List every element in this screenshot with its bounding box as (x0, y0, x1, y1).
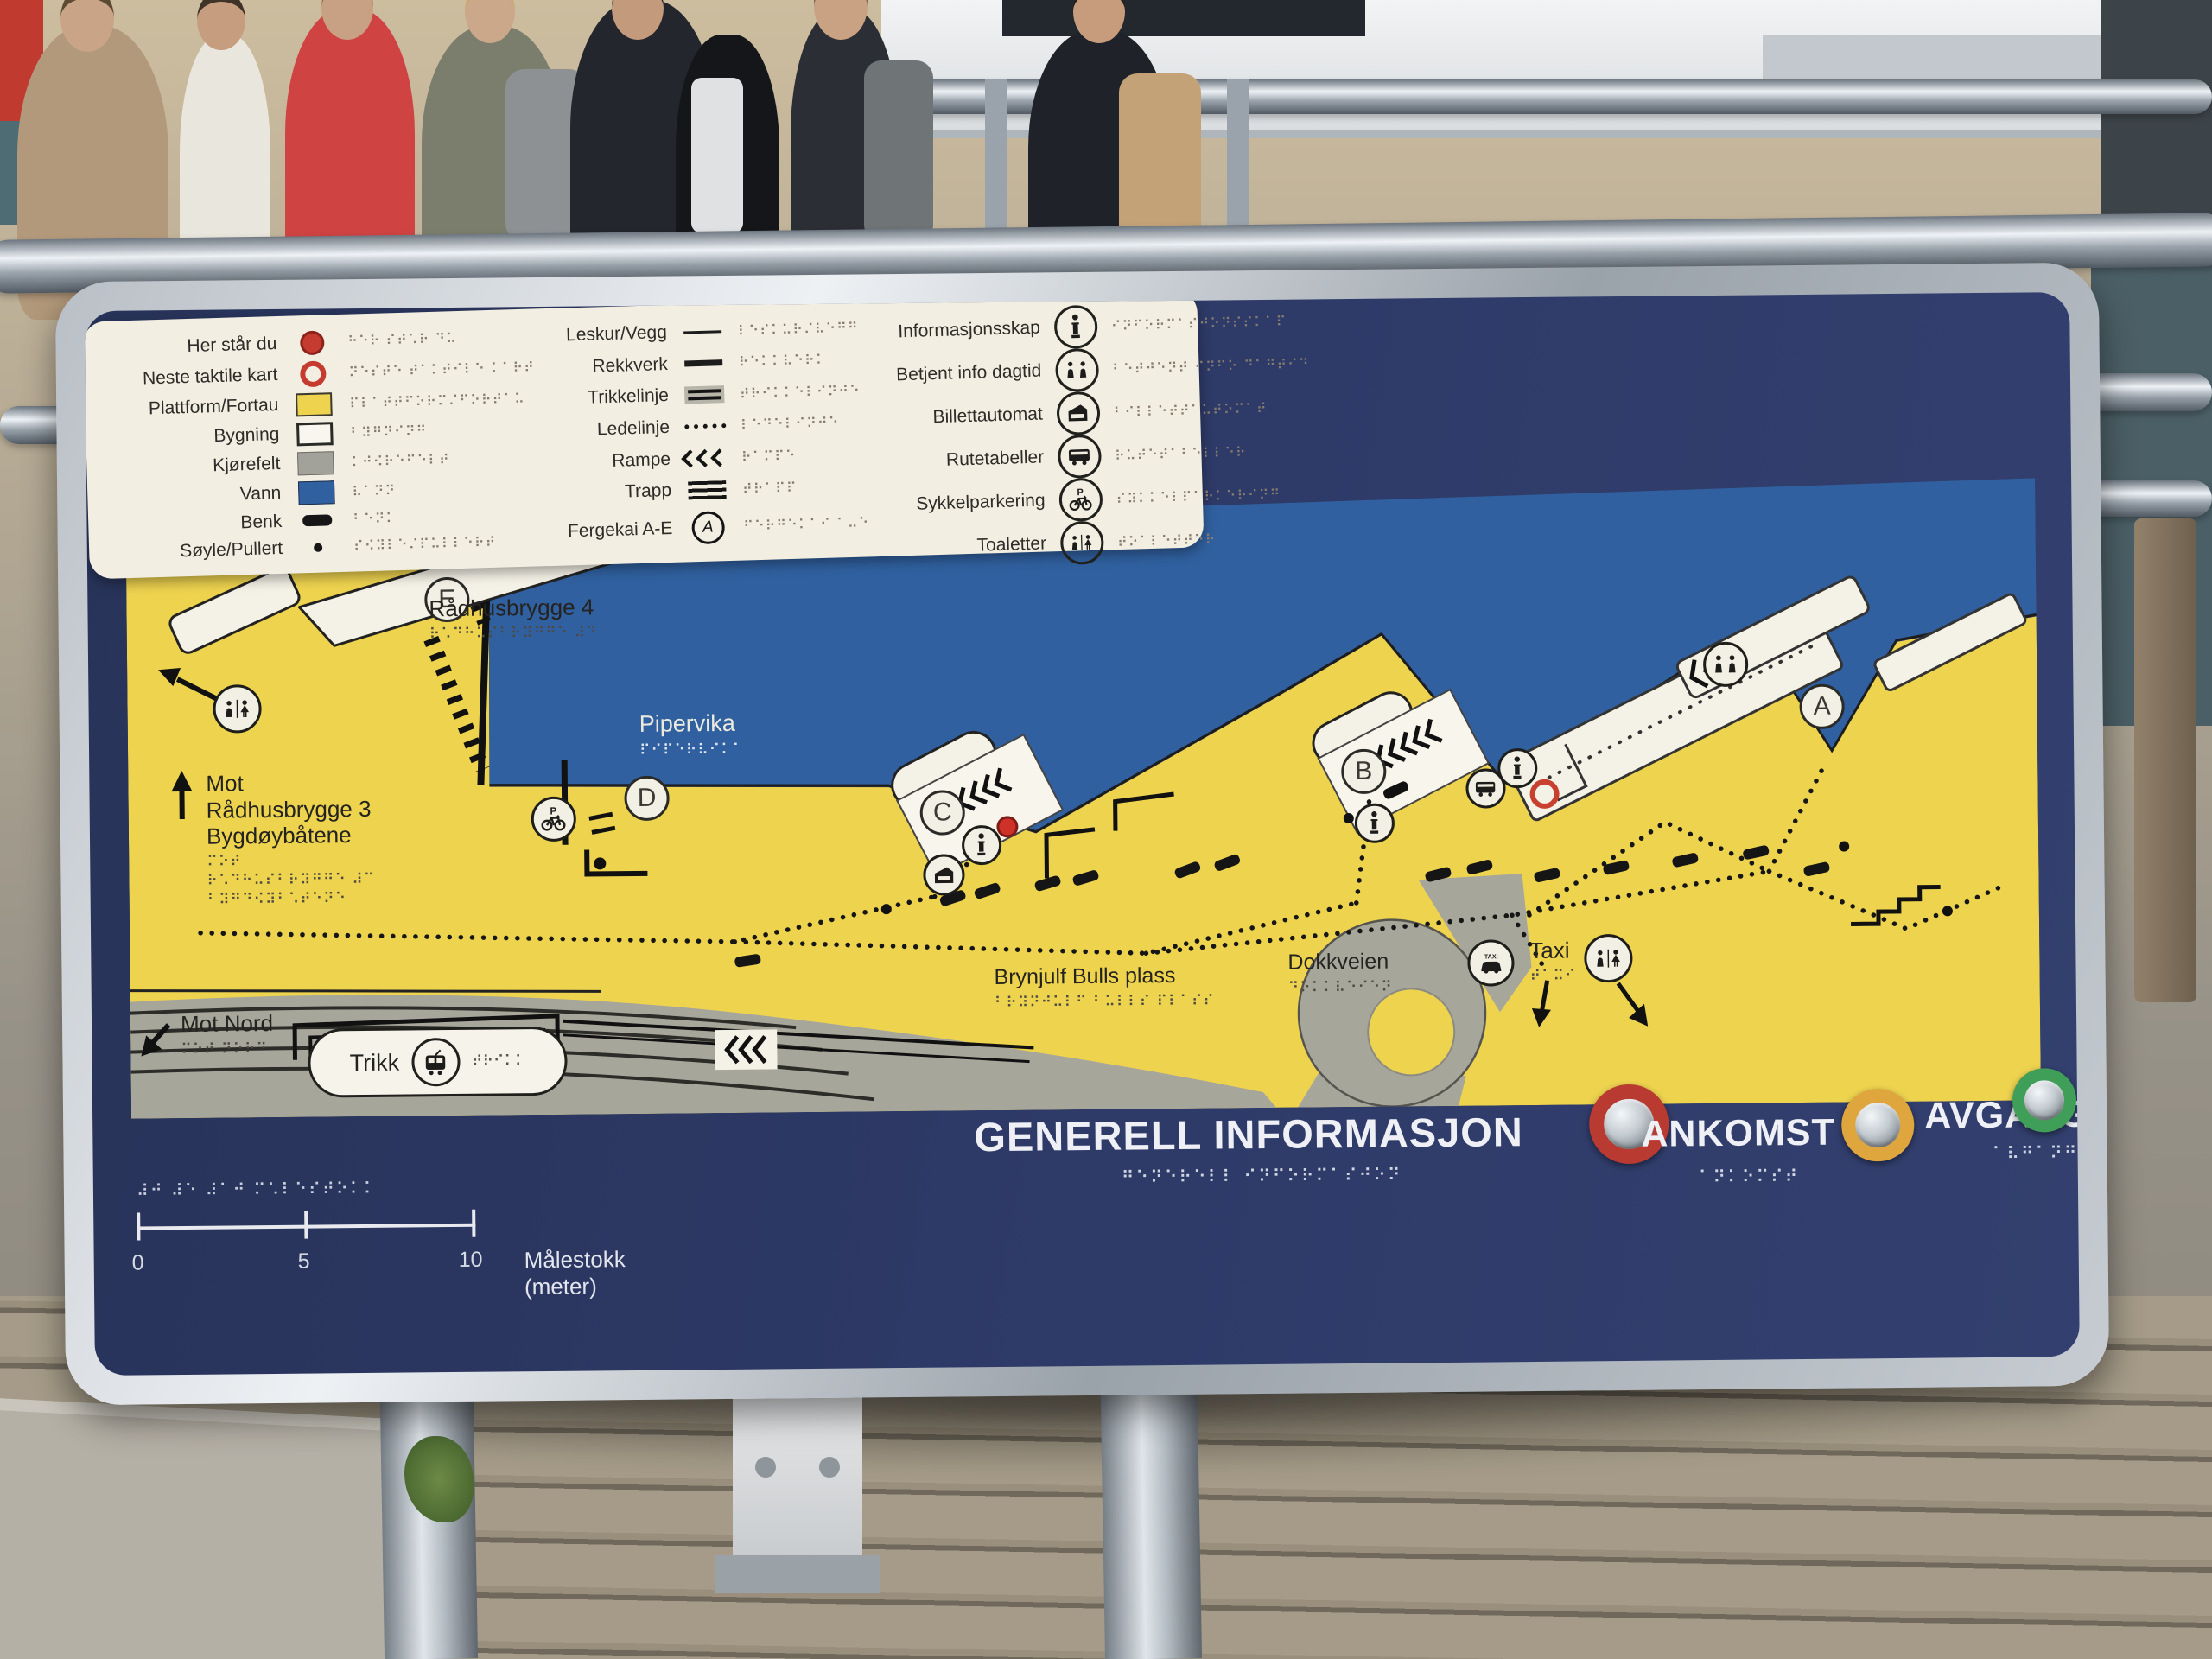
yellow-swatch (289, 391, 340, 416)
legend-braille: ⠎⠪⠽⠇⠑⠌⠏⠥⠇⠇⠑⠗⠞ (353, 534, 497, 555)
tactile-map: A B C D E Rådhusbrygge 4 ⠗⠡⠙⠓ (125, 478, 2041, 1118)
map-scale: ⠼⠚ ⠼⠑ ⠼⠁⠚ ⠍⠡⠇⠑⠎⠞⠕⠅⠅ 0 5 10 Målestokk (me… (137, 1177, 639, 1251)
legend-label: Bygning (108, 424, 280, 450)
bike-parking-icon (531, 797, 576, 842)
legend-label: Her står du (105, 334, 277, 359)
bench-symbol (292, 514, 342, 527)
generell-informasjon-braille: ⠛⠑⠝⠑⠗⠑⠇⠇ ⠊⠝⠋⠕⠗⠍⠁⠎⠚⠕⠝ (1122, 1164, 1402, 1187)
timetable-icon (1053, 435, 1104, 480)
dotted-line-symbol (680, 423, 730, 429)
ankomst-braille: ⠁⠝⠅⠕⠍⠎⠞ (1699, 1166, 1800, 1187)
tram-icon (411, 1038, 461, 1087)
scale-bar (137, 1207, 517, 1247)
legend-braille: ⠝⠑⠎⠞⠑ ⠞⠁⠅⠞⠊⠇⠑ ⠅⠁⠗⠞ (348, 359, 535, 380)
legend-braille: ⠗⠁⠍⠏⠑ (741, 448, 797, 466)
concrete-slab (0, 1397, 422, 1659)
ship-window-band (1002, 0, 1365, 36)
legend-braille: ⠓⠑⠗ ⠎⠞⠡⠗ ⠙⠥ (347, 330, 457, 350)
trikk-braille: ⠞⠗⠊⠅⠅ (472, 1052, 525, 1071)
legend-label: Fergekai A-E (544, 518, 673, 543)
stairs-symbol (682, 480, 733, 500)
info-icon (1497, 748, 1537, 788)
label-taxi: Taxi ⠞⠁⠭⠊ (1529, 938, 1576, 985)
sign-panel: AKER BRYGGE ⠁⠅⠑⠗ ⠃⠗⠽⠛⠛⠑ (85, 292, 2080, 1376)
scale-unit-label: Målestokk (meter) (524, 1246, 639, 1300)
label-radhusbrygge-4: Rådhusbrygge 4 ⠗⠡⠙⠓⠥⠎⠃⠗⠽⠛⠛⠑ ⠼⠙ (429, 594, 597, 643)
scale-numbers: 0 5 10 Målestokk (meter) (137, 1246, 639, 1251)
legend-braille: ⠇⠑⠎⠅⠥⠗⠌⠧⠑⠛⠛ (738, 319, 859, 339)
red-ring-symbol (288, 360, 339, 388)
quay-circle-a: A (1799, 684, 1844, 729)
ticket-machine-icon (923, 854, 964, 895)
legend-label: Trapp (543, 480, 672, 505)
label-dokkveien: Dokkveien ⠙⠕⠅⠅⠧⠑⠊⠑⠝ (1287, 950, 1393, 997)
legend-row-rampe: Rampe⠗⠁⠍⠏⠑ (543, 443, 868, 474)
pedestal-base (715, 1555, 880, 1593)
legend-row-leskur: Leskur/Vegg⠇⠑⠎⠅⠥⠗⠌⠧⠑⠛⠛ (539, 317, 865, 347)
double-line-symbol (679, 385, 730, 404)
white-swatch (289, 421, 340, 446)
legend-row-kjorefelt: Kjørefelt⠅⠚⠪⠗⠑⠋⠑⠇⠞ (109, 445, 537, 480)
quay-letter-symbol: A (683, 511, 734, 545)
legend-label: Leskur/Vegg (539, 322, 668, 346)
legend-label: Kjørefelt (109, 454, 281, 480)
wooden-pole (2134, 518, 2196, 1002)
legend-braille: ⠃⠑⠞⠚⠑⠝⠞ ⠊⠝⠋⠕ ⠙⠁⠛⠞⠊⠙ (1112, 355, 1310, 378)
info-icon (1355, 804, 1395, 843)
legend-braille: ⠃⠊⠇⠇⠑⠞⠞⠁⠥⠞⠕⠍⠁⠞ (1113, 400, 1268, 421)
quay-circle-d: D (624, 776, 669, 821)
legend-column-symbols: Her står du⠓⠑⠗ ⠎⠞⠡⠗ ⠙⠥ Neste taktile kar… (105, 321, 540, 566)
legend-braille: ⠞⠗⠊⠅⠅⠑⠇⠊⠝⠚⠑ (740, 383, 861, 403)
ticket-machine-icon (1052, 391, 1103, 436)
quay-circle-b: B (1341, 749, 1386, 794)
legend-label: Trikkelinje (541, 385, 670, 410)
legend-braille: ⠏⠇⠁⠞⠞⠋⠕⠗⠍⠌⠋⠕⠗⠞⠁⠥ (349, 390, 525, 411)
legend-label: Ledelinje (542, 417, 671, 442)
legend-label: Plattform/Fortau (107, 395, 279, 421)
bike-parking-icon (1055, 477, 1106, 522)
scale-braille: ⠼⠚ ⠼⠑ ⠼⠁⠚ ⠍⠡⠇⠑⠎⠞⠕⠅⠅ (137, 1177, 638, 1201)
legend-label: Informasjonsskap (869, 318, 1041, 344)
quay-circle-c: C (920, 790, 965, 835)
backpack (864, 60, 933, 242)
ankomst-button[interactable] (1841, 1089, 1915, 1162)
taxi-icon (1467, 939, 1515, 987)
bollard-symbol (293, 542, 343, 552)
map-legend: Her står du⠓⠑⠗ ⠎⠞⠡⠗ ⠙⠥ Neste taktile kar… (85, 292, 1204, 579)
blue-swatch (291, 480, 342, 505)
gray-swatch (290, 450, 341, 475)
avgang-braille: ⠁⠧⠛⠁⠝⠛ (1992, 1142, 2078, 1164)
legend-row-soyle: Søyle/Pullert⠎⠪⠽⠇⠑⠌⠏⠥⠇⠇⠑⠗⠞ (111, 531, 540, 563)
legend-label: Søyle/Pullert (111, 537, 283, 563)
map-drawing (125, 478, 2041, 1118)
scale-10: 10 (459, 1248, 483, 1273)
label-pipervika: Pipervika ⠏⠊⠏⠑⠗⠧⠊⠅⠁ (639, 710, 745, 760)
legend-label: Betjent info dagtid (870, 361, 1042, 387)
legend-braille: ⠞⠕⠁⠇⠑⠞⠞⠑⠗ (1117, 531, 1217, 550)
legend-label: Neste taktile kart (106, 365, 278, 391)
legend-label: Rekkverk (540, 354, 669, 378)
legend-label: Billettautomat (871, 404, 1043, 430)
legend-label: Sykkelparkering (874, 491, 1046, 517)
trikk-stop: Trikk ⠞⠗⠊⠅⠅ (308, 1027, 568, 1098)
generell-informasjon-label: GENERELL INFORMASJON (974, 1108, 1523, 1160)
info-icon (962, 825, 1001, 865)
photo-scene: AKER BRYGGE ⠁⠅⠑⠗ ⠃⠗⠽⠛⠛⠑ (0, 0, 2212, 1659)
toilets-icon (1056, 520, 1107, 565)
trikk-label: Trikk (349, 1049, 399, 1077)
legend-row-her-star-du: Her står du⠓⠑⠗ ⠎⠞⠡⠗ ⠙⠥ (105, 324, 534, 360)
legend-braille: ⠋⠑⠗⠛⠑⠅⠁⠊ ⠁⠤⠑ (743, 515, 869, 535)
staffed-info-icon (1052, 348, 1103, 393)
toilets-icon (1584, 934, 1633, 983)
legend-braille: ⠧⠁⠝⠝ (352, 482, 396, 499)
thick-line-symbol (678, 359, 728, 367)
legend-braille: ⠃⠑⠝⠅ (353, 510, 397, 527)
legend-label: Rutetabeller (873, 448, 1045, 474)
scale-5: 5 (298, 1249, 310, 1274)
staffed-info-icon (1703, 642, 1748, 687)
legend-row-fergekai: Fergekai A-EA⠋⠑⠗⠛⠑⠅⠁⠊ ⠁⠤⠑ (544, 506, 870, 549)
legend-braille: ⠊⠝⠋⠕⠗⠍⠁⠎⠚⠕⠝⠎⠎⠅⠁⠏ (1111, 313, 1287, 334)
legend-label: Rampe (543, 448, 671, 473)
legend-braille: ⠗⠑⠅⠅⠧⠑⠗⠅ (739, 352, 827, 371)
legend-row-neste-taktile-kart: Neste taktile kart⠝⠑⠎⠞⠑ ⠞⠁⠅⠞⠊⠇⠑ ⠅⠁⠗⠞ (106, 354, 535, 392)
legend-braille: ⠅⠚⠪⠗⠑⠋⠑⠇⠞ (351, 451, 450, 470)
legend-row-vann: Vann⠧⠁⠝⠝ (110, 474, 538, 510)
legend-column-lines: Leskur/Vegg⠇⠑⠎⠅⠥⠗⠌⠧⠑⠛⠛ Rekkverk⠗⠑⠅⠅⠧⠑⠗⠅ … (538, 311, 870, 554)
legend-row-ledelinje: Ledelinje⠇⠑⠙⠑⠇⠊⠝⠚⠑ (542, 411, 868, 442)
legend-label: Benk (111, 511, 283, 537)
legend-row-rekkverk: Rekkverk⠗⠑⠅⠅⠧⠑⠗⠅ (540, 348, 866, 378)
legend-row-plattform: Plattform/Fortau⠏⠇⠁⠞⠞⠋⠕⠗⠍⠌⠋⠕⠗⠞⠁⠥ (107, 386, 536, 422)
scale-0: 0 (132, 1250, 144, 1275)
sign-leg-right (1100, 1356, 1202, 1659)
legend-braille: ⠎⠽⠅⠅⠑⠇⠏⠁⠗⠅⠑⠗⠊⠝⠛ (1116, 486, 1281, 506)
label-mot-nord: Mot Nord ⠍⠕⠞ ⠝⠕⠗⠙ (181, 1010, 273, 1058)
legend-braille: ⠃⠽⠛⠝⠊⠝⠛ (350, 423, 428, 442)
info-icon (1050, 305, 1101, 350)
label-brynjulf-bulls-plass: Brynjulf Bulls plass ⠃⠗⠽⠝⠚⠥⠇⠋ ⠃⠥⠇⠇⠎ ⠏⠇⠁⠎… (994, 963, 1214, 1012)
legend-row-bygning: Bygning⠃⠽⠛⠝⠊⠝⠛ (108, 416, 537, 451)
legend-column-services: Informasjonsskap⠊⠝⠋⠕⠗⠍⠁⠎⠚⠕⠝⠎⠎⠅⠁⠏ Betjent… (868, 299, 1314, 545)
chevrons-symbol (681, 451, 731, 466)
center-pedestal (733, 1381, 862, 1567)
legend-row-trapp: Trapp⠞⠗⠁⠏⠏ (543, 474, 869, 505)
legend-braille: ⠞⠗⠁⠏⠏ (742, 479, 798, 497)
label-mot-radhusbrygge-3: Mot Rådhusbrygge 3 Bygdøybåtene ⠍⠕⠞ ⠗⠡⠙⠓… (206, 769, 375, 909)
red-dot-symbol (287, 330, 338, 356)
legend-row-trikkelinje: Trikkelinje⠞⠗⠊⠅⠅⠑⠇⠊⠝⠚⠑ (541, 380, 867, 410)
legend-label: Vann (110, 483, 282, 509)
tactile-map-sign: AKER BRYGGE ⠁⠅⠑⠗ ⠃⠗⠽⠛⠛⠑ (55, 263, 2109, 1406)
legend-label: Toaletter (875, 533, 1047, 559)
ankomst-label: ANKOMST (1641, 1112, 1835, 1156)
legend-braille: ⠇⠑⠙⠑⠇⠊⠝⠚⠑ (741, 415, 840, 434)
white-shirt (691, 78, 743, 233)
thin-line-symbol (677, 330, 728, 334)
legend-braille: ⠗⠥⠞⠑⠞⠁⠃⠑⠇⠇⠑⠗ (1115, 443, 1247, 463)
avgang-button[interactable] (2012, 1068, 2077, 1133)
toilets-icon (213, 684, 262, 734)
